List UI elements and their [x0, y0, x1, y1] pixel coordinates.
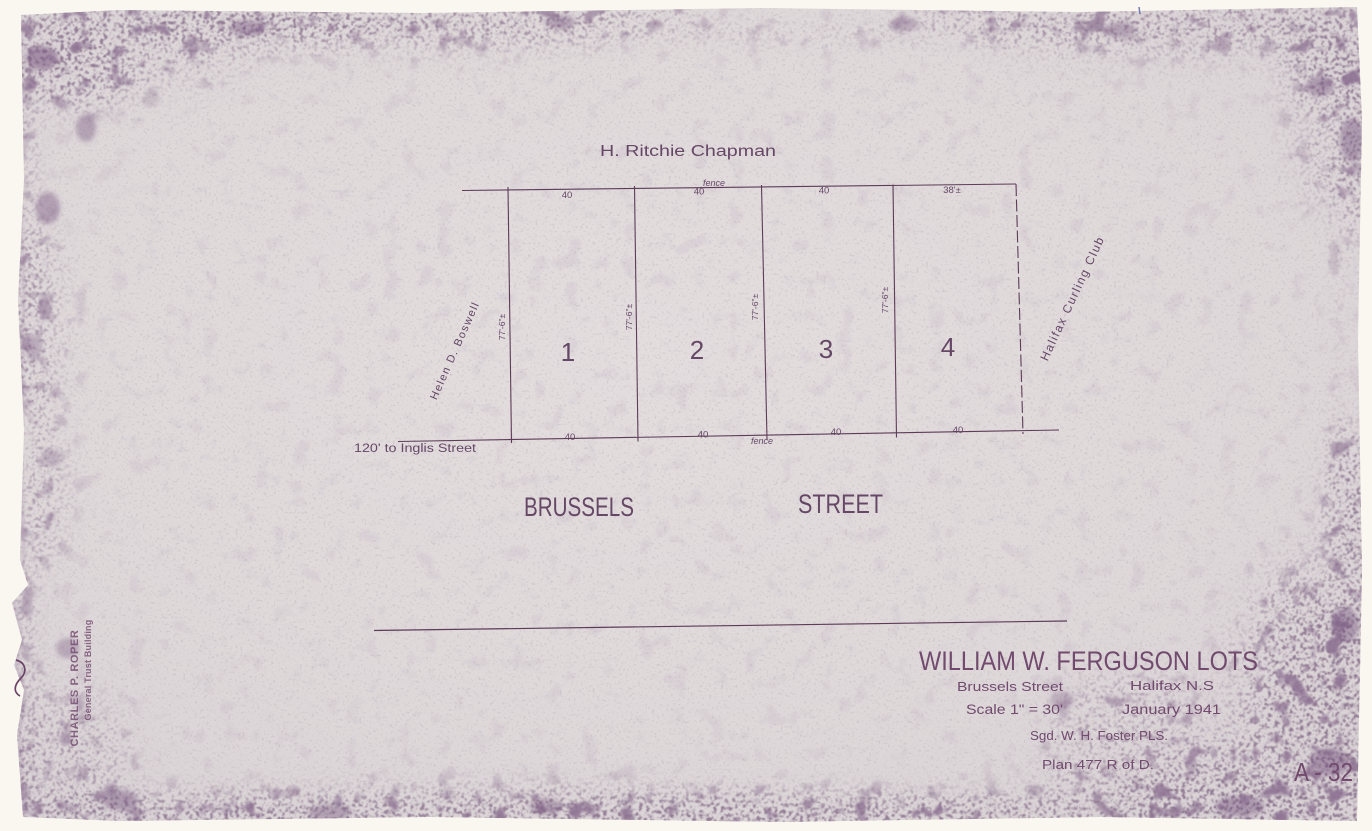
svg-text:fence: fence [703, 178, 725, 188]
svg-text:1: 1 [561, 337, 575, 367]
svg-text:40: 40 [819, 186, 830, 197]
svg-text:CHARLES P. ROPER: CHARLES P. ROPER [69, 630, 81, 747]
svg-text:40: 40 [953, 425, 964, 436]
svg-text:H. Ritchie Chapman: H. Ritchie Chapman [600, 143, 776, 160]
svg-text:38'±: 38'± [943, 185, 961, 196]
svg-text:Brussels Street: Brussels Street [957, 679, 1063, 694]
svg-text:40: 40 [562, 190, 573, 201]
svg-text:77'-6"±: 77'-6"± [624, 304, 634, 331]
svg-text:A - 32: A - 32 [1294, 757, 1353, 787]
svg-text:Plan 477 R of D.: Plan 477 R of D. [1042, 758, 1154, 772]
svg-text:40: 40 [565, 432, 576, 443]
svg-text:WILLIAM W. FERGUSON LOTS: WILLIAM W. FERGUSON LOTS [919, 646, 1258, 676]
svg-text:40: 40 [831, 427, 842, 438]
svg-text:Scale 1" = 30': Scale 1" = 30' [966, 702, 1063, 717]
svg-text:3: 3 [819, 334, 833, 364]
svg-text:STREET: STREET [798, 489, 883, 519]
svg-text:77'-6"±: 77'-6"± [497, 314, 507, 341]
svg-text:77'-6"±: 77'-6"± [880, 287, 890, 314]
svg-text:120' to Inglis Street: 120' to Inglis Street [354, 443, 477, 455]
svg-text:4: 4 [941, 332, 955, 362]
svg-text:77'-6"±: 77'-6"± [750, 294, 760, 321]
svg-text:BRUSSELS: BRUSSELS [524, 492, 634, 522]
svg-text:General Trust Building: General Trust Building [83, 620, 93, 721]
svg-text:40: 40 [694, 187, 705, 198]
svg-text:40: 40 [698, 430, 709, 441]
svg-text:fence: fence [751, 436, 773, 446]
svg-text:Halifax N.S: Halifax N.S [1130, 678, 1214, 693]
svg-text:2: 2 [690, 335, 704, 365]
svg-text:Sgd. W. H. Foster PLS.: Sgd. W. H. Foster PLS. [1030, 728, 1168, 743]
svg-text:January 1941: January 1941 [1122, 702, 1221, 717]
